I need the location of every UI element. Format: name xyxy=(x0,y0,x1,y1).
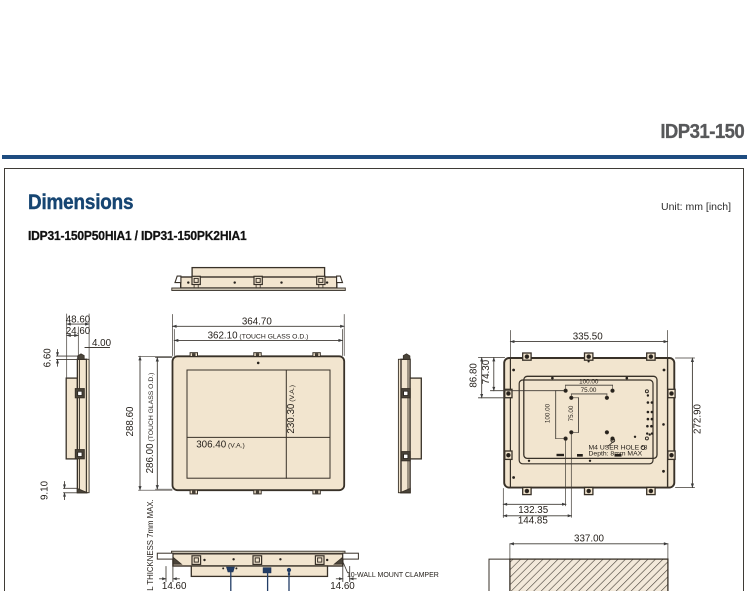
svg-text:10-WALL MOUNT CLAMPER: 10-WALL MOUNT CLAMPER xyxy=(347,572,439,579)
svg-text:362.10 (TOUCH GLASS O.D.): 362.10 (TOUCH GLASS O.D.) xyxy=(208,330,309,341)
svg-text:100.00: 100.00 xyxy=(545,403,552,423)
svg-text:144.85: 144.85 xyxy=(518,516,549,527)
svg-text:6.60: 6.60 xyxy=(43,348,54,368)
svg-text:48.60: 48.60 xyxy=(66,315,91,326)
svg-text:9.10: 9.10 xyxy=(39,480,50,500)
svg-text:75.00: 75.00 xyxy=(581,387,597,394)
svg-text:Depth: 8mm MAX: Depth: 8mm MAX xyxy=(589,450,643,457)
svg-text:272.90: 272.90 xyxy=(692,403,703,434)
svg-text:286.00 (TOUCH GLASS O.D.): 286.00 (TOUCH GLASS O.D.) xyxy=(145,373,156,474)
svg-text:24.60: 24.60 xyxy=(66,326,91,337)
svg-text:364.70: 364.70 xyxy=(242,316,273,327)
svg-text:4.00: 4.00 xyxy=(92,338,112,349)
svg-text:100.00: 100.00 xyxy=(579,378,599,385)
svg-text:335.50: 335.50 xyxy=(573,332,604,343)
svg-text:337.00: 337.00 xyxy=(574,533,605,544)
svg-text:75.00: 75.00 xyxy=(568,405,575,421)
svg-text:14.60: 14.60 xyxy=(162,581,187,591)
svg-text:86.80: 86.80 xyxy=(468,363,479,388)
svg-text:74.30: 74.30 xyxy=(481,359,492,384)
svg-text:288.60: 288.60 xyxy=(125,406,136,437)
svg-text:WALL THICKNESS 7mm MAX.: WALL THICKNESS 7mm MAX. xyxy=(146,499,155,591)
svg-text:14.60: 14.60 xyxy=(330,581,355,591)
